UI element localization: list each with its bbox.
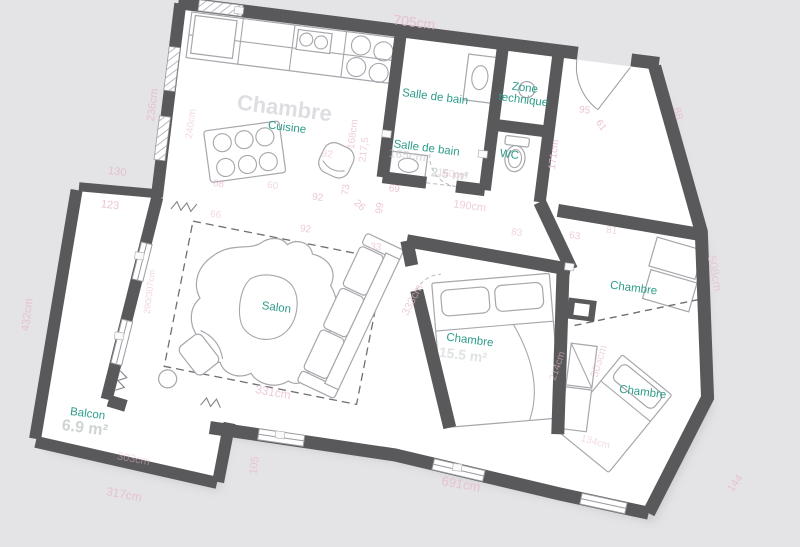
dimension-text: 33 [370,241,383,253]
dimension-text: 317cm [105,484,143,504]
plan-rotated-group: Chambre165cm2.5 m²15.5 m²6.9 m² CuisineS… [0,0,798,547]
partition-salon-chambre-a [404,241,415,266]
dimension-text: 99 [374,202,386,215]
dimension-text: 92 [321,148,334,160]
floor-plan-canvas: Chambre165cm2.5 m²15.5 m²6.9 m² CuisineS… [0,0,800,547]
dimension-text: 95 [578,104,591,116]
dimension-text: 236cm [145,88,161,122]
wall-south-west-stub [108,401,126,406]
dimension-text: 130 [107,165,127,179]
dimension-text: 81 [605,225,618,237]
dimension-text: 73 [340,183,352,196]
dimension-text: 105 [247,456,261,476]
wall-top-entry [631,60,659,64]
partition-bath-south-a [383,177,427,183]
dimension-text: 66 [209,209,222,221]
floor-plan-screenshot: Chambre165cm2.5 m²15.5 m²6.9 m² CuisineS… [0,0,800,547]
room-label-wc: WC [499,148,520,162]
dimension-text: 432cm [20,298,36,332]
dimension-text: 92 [311,192,324,204]
dimension-text: 123 [100,198,120,212]
shaft-column-core [573,303,589,317]
dimension-text: 83 [510,227,523,239]
dimension-text: 63 [569,230,582,242]
dimension-text: 92 [299,223,312,235]
dimension-text: 60 [266,180,279,192]
dimension-text: 144 [725,472,745,494]
sink-icon [296,29,332,53]
dimension-text: 68 [212,178,225,190]
dimension-text: 69 [388,183,401,195]
